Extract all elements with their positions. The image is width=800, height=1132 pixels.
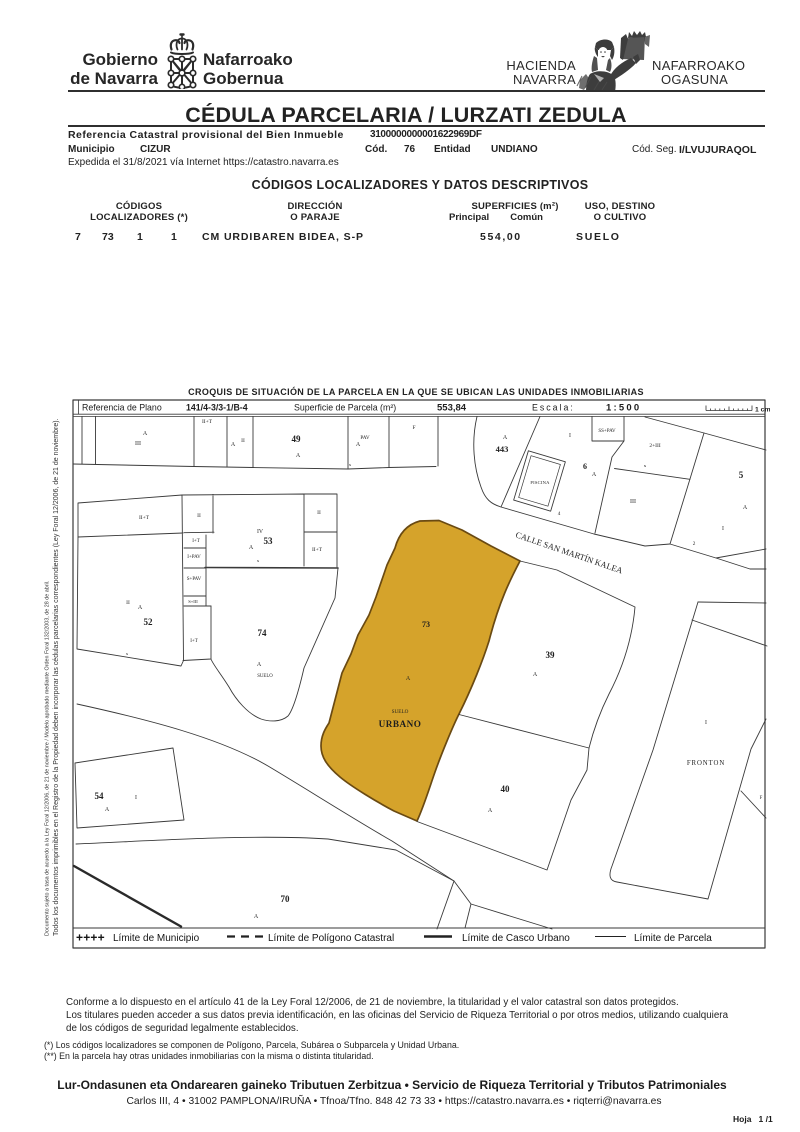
svg-text:I: I [722,526,724,532]
svg-text:I+T: I+T [190,639,198,644]
svg-text:I+PAV: I+PAV [187,555,201,560]
svg-text:II+T: II+T [202,419,213,425]
svg-text:39: 39 [546,650,556,660]
svg-text:A: A [138,605,143,611]
svg-text:4: 4 [558,511,561,517]
svg-text:141/4-3/3-1/B-4: 141/4-3/3-1/B-4 [186,403,248,413]
svg-text:Límite de Polígono Catastral: Límite de Polígono Catastral [268,933,394,944]
svg-text:2: 2 [693,541,696,547]
svg-text:A: A [503,435,508,441]
svg-text:++++: ++++ [76,931,105,945]
svg-text:A: A [356,442,361,448]
svg-text:Límite de Parcela: Límite de Parcela [634,933,712,944]
svg-text:PISCINA: PISCINA [530,480,550,485]
svg-text:I: I [135,795,137,801]
svg-text:A: A [249,545,254,551]
svg-text:F: F [760,796,763,801]
svg-text:s: s [349,462,351,467]
svg-text:2+III: 2+III [649,443,661,449]
svg-text:A: A [488,808,493,814]
svg-text:F: F [412,425,415,431]
svg-text:I: I [705,720,707,726]
svg-text:s: s [644,463,646,468]
svg-text:S+PAV: S+PAV [187,577,202,582]
svg-text:A: A [143,431,148,437]
svg-text:SS+PAV: SS+PAV [598,429,616,434]
svg-text:Documento sujeto a tasa de acu: Documento sujeto a tasa de acuerdo a la … [45,581,51,936]
svg-text:A: A [406,676,411,682]
svg-text:I: I [569,433,571,439]
svg-text:Superficie de Parcela (m²): Superficie de Parcela (m²) [294,403,396,413]
svg-text:5: 5 [739,470,744,480]
svg-text:IV: IV [257,529,264,535]
svg-text:II: II [197,513,201,519]
svg-text:SUELO: SUELO [392,709,409,715]
svg-text:A: A [743,505,748,511]
svg-text:URBANO: URBANO [379,719,422,729]
svg-text:A: A [231,442,236,448]
svg-text:Referencia de Plano: Referencia de Plano [82,403,162,413]
svg-text:s: s [257,558,259,563]
svg-text:A: A [257,662,262,668]
svg-text:443: 443 [496,444,509,454]
svg-text:II+T: II+T [312,547,323,553]
svg-text:II: II [126,600,130,606]
svg-text:73: 73 [422,620,430,629]
svg-text:II: II [317,510,321,516]
svg-text:I+T: I+T [192,539,200,544]
svg-text:A: A [105,807,110,813]
svg-text:54: 54 [95,791,105,801]
svg-text:Límite de Municipio: Límite de Municipio [113,933,200,944]
svg-text:1:500: 1:500 [606,403,641,414]
svg-text:49: 49 [292,434,302,444]
svg-text:52: 52 [144,617,154,627]
svg-text:III: III [135,441,141,447]
svg-text:40: 40 [501,784,511,794]
svg-text:Todos los documentos imprimibl: Todos los documentos imprimibles en el R… [53,418,60,936]
svg-text:Límite de Casco Urbano: Límite de Casco Urbano [462,933,570,944]
svg-text:6: 6 [583,462,587,471]
svg-text:70: 70 [281,894,291,904]
svg-text:Escala:: Escala: [532,403,575,413]
svg-text:1 cm.: 1 cm. [755,407,770,414]
svg-text:II: II [241,438,245,444]
svg-text:s: s [126,651,128,656]
svg-text:SUELO: SUELO [257,674,273,679]
svg-text:A: A [296,453,301,459]
svg-text:FRONTON: FRONTON [687,760,725,767]
svg-text:74: 74 [258,628,268,638]
svg-text:A: A [254,914,259,920]
svg-text:53: 53 [264,536,274,546]
svg-text:A: A [533,672,538,678]
svg-text:PAV: PAV [360,435,369,441]
svg-text:III: III [630,499,636,505]
svg-text:A: A [592,472,597,478]
svg-text:II+T: II+T [139,515,150,521]
svg-text:CALLE SAN MARTÍN KALEA: CALLE SAN MARTÍN KALEA [514,529,625,575]
svg-text:S+III: S+III [188,599,198,604]
svg-text:553,84: 553,84 [437,403,467,414]
